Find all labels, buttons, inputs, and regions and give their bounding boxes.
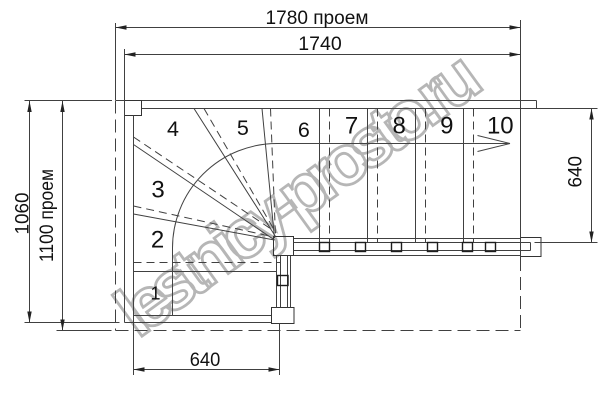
svg-text:9: 9 xyxy=(440,112,453,139)
svg-text:2: 2 xyxy=(151,226,164,253)
svg-text:4: 4 xyxy=(167,117,179,141)
svg-text:1: 1 xyxy=(150,284,160,304)
svg-text:1100 проем: 1100 проем xyxy=(37,169,58,262)
svg-text:1060: 1060 xyxy=(13,193,34,235)
svg-text:6: 6 xyxy=(298,118,310,142)
svg-text:10: 10 xyxy=(487,112,514,139)
svg-text:640: 640 xyxy=(190,350,221,371)
svg-text:7: 7 xyxy=(345,112,358,139)
svg-text:5: 5 xyxy=(237,116,249,140)
svg-text:8: 8 xyxy=(393,112,406,139)
svg-text:640: 640 xyxy=(566,156,587,188)
svg-text:1740: 1740 xyxy=(298,34,342,55)
svg-text:3: 3 xyxy=(151,176,164,203)
svg-text:1780 проем: 1780 проем xyxy=(266,8,369,29)
